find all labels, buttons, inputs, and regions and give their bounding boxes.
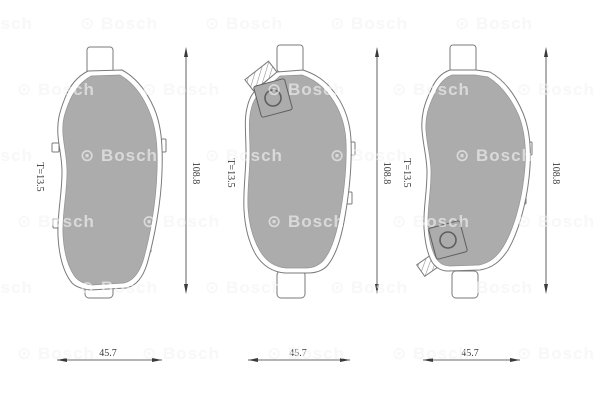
pad-right-bottom-tab (452, 271, 478, 298)
pad-left-thickness-dimension: T=13.5 (34, 162, 45, 191)
pad-left-height-dimension: 108.8 (190, 162, 201, 185)
pad-middle-height-dimension: 108.8 (381, 162, 392, 185)
brake-pad-left (52, 47, 166, 298)
pad-middle-thickness-dimension: T=13.5 (225, 158, 236, 187)
pad-middle-bottom-tab (277, 271, 305, 298)
pad-left-width-dimension: 45.7 (99, 348, 117, 359)
technical-drawing-page: ⊙ Bosch⊙ Bosch⊙ Bosch⊙ Bosch⊙ Bosch⊙ Bos… (0, 0, 600, 400)
pad-middle-width-dimension: 45.7 (289, 348, 307, 359)
pad-right-top-tab (450, 45, 476, 72)
pad-right-thickness-dimension: T=13.5 (401, 158, 412, 187)
pad-left-friction-material (63, 75, 157, 285)
pad-right-width-dimension: 45.7 (461, 348, 479, 359)
brake-pad-middle (244, 45, 355, 298)
pad-left-edge-lug (52, 143, 59, 152)
pad-middle-top-tab (277, 45, 303, 72)
brake-pad-right (417, 45, 532, 298)
pad-right-height-dimension: 108.8 (550, 162, 561, 185)
brake-pad-drawing: 108.8 45.7 T=13.5 (0, 0, 600, 400)
